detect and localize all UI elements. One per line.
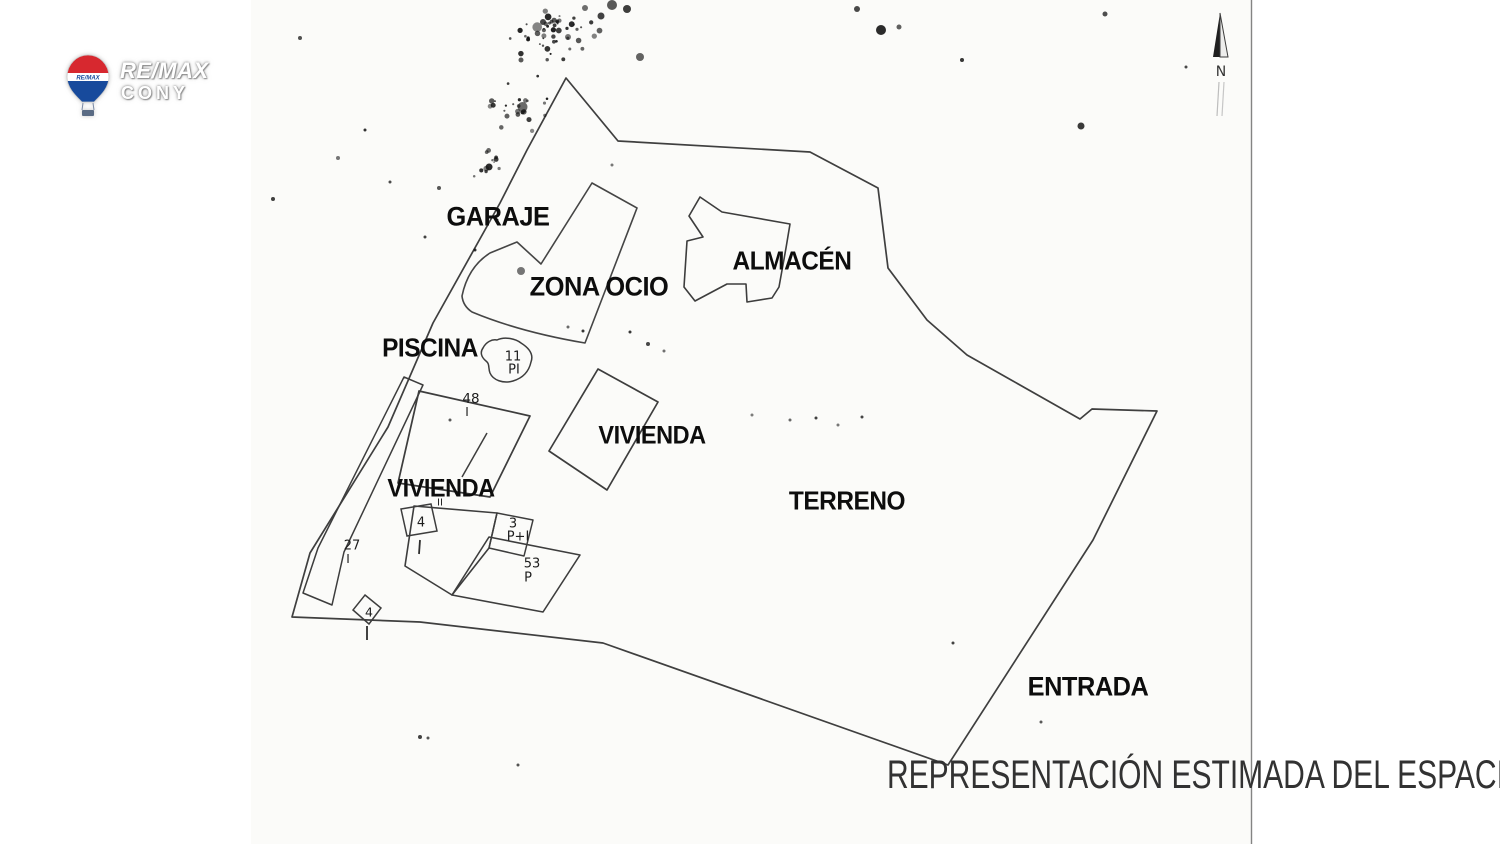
ink-speckle: [543, 8, 548, 13]
north-arrow-left-half: [1213, 13, 1220, 57]
ink-speckle: [546, 97, 549, 100]
ink-speckle: [515, 109, 520, 114]
ink-speckle: [298, 36, 302, 40]
ink-speckle: [437, 186, 441, 190]
ink-speckle: [526, 117, 531, 122]
ink-speckle: [550, 53, 552, 55]
building-almacen: [684, 197, 790, 302]
ink-speckle: [646, 342, 650, 346]
estimation-caption: REPRESENTACIÓN ESTIMADA DEL ESPACIO: [887, 753, 1500, 798]
ink-speckle: [491, 159, 493, 161]
ink-speckle: [512, 103, 514, 105]
ink-speckle: [1103, 12, 1108, 17]
ink-speckle: [548, 22, 551, 25]
ink-speckle: [551, 27, 556, 32]
ink-speckle: [494, 155, 498, 159]
remax-wordmark: RE/MAX: [120, 58, 209, 84]
ink-speckle: [389, 181, 392, 184]
ink-speckle: [479, 168, 483, 172]
north-arrow-right-half: [1220, 13, 1228, 57]
building-strip-27: [303, 377, 423, 605]
ink-speckle: [607, 0, 617, 10]
ink-speckle: [597, 28, 603, 34]
ink-speckle: [517, 764, 520, 767]
ink-speckle: [473, 175, 476, 178]
ink-speckle: [556, 28, 562, 34]
ink-speckle: [545, 14, 552, 21]
ink-speckle: [524, 35, 527, 38]
square-4-upper: [401, 504, 437, 536]
ink-speckle: [518, 51, 523, 56]
ink-speckle: [507, 82, 510, 85]
ink-speckle: [517, 28, 522, 33]
ink-speckle: [556, 20, 559, 23]
ink-speckle: [418, 735, 422, 739]
ink-speckle: [751, 414, 754, 417]
ink-speckle: [517, 267, 525, 275]
remax-balloon-icon: RE/MAX: [64, 54, 112, 118]
ink-speckle: [1185, 66, 1188, 69]
ink-speckle: [488, 104, 493, 109]
ink-speckle: [518, 98, 521, 101]
ink-speckle: [861, 416, 864, 419]
pool-piscina: [481, 338, 532, 382]
ink-speckle: [960, 58, 964, 62]
ink-speckle: [663, 350, 666, 353]
ink-speckle: [486, 148, 491, 153]
ink-speckle: [623, 5, 631, 13]
north-staff-line-1: [1217, 82, 1219, 116]
ink-speckle: [526, 37, 530, 41]
building-zona-ocio: [462, 183, 637, 343]
ink-speckle: [553, 23, 557, 27]
ink-speckle: [582, 5, 588, 11]
ink-speckle: [580, 47, 584, 51]
ink-speckle: [543, 114, 546, 117]
building-48-partition: [462, 433, 487, 477]
ink-speckle: [542, 38, 544, 40]
ink-speckle: [569, 21, 575, 27]
ink-speckle: [897, 25, 902, 30]
ink-speckle: [1078, 123, 1085, 130]
ink-speckle: [1040, 721, 1043, 724]
building-53: [452, 537, 580, 612]
ink-speckle: [837, 424, 840, 427]
ink-speckle: [497, 167, 500, 170]
ink-speckle: [530, 129, 534, 133]
remax-logo: RE/MAX RE/MAX CONY: [64, 52, 284, 132]
building-vivienda-right: [549, 369, 658, 490]
ink-speckle: [545, 46, 551, 52]
ink-speckle: [598, 13, 605, 20]
ink-speckle: [271, 197, 275, 201]
ink-speckle: [565, 34, 571, 40]
ink-speckle: [526, 23, 528, 25]
building-48: [398, 391, 530, 497]
ink-speckle: [424, 236, 427, 239]
speckle-layer: [271, 0, 1188, 767]
ink-speckle: [561, 57, 565, 61]
ink-speckle: [483, 166, 489, 172]
ink-speckle: [532, 22, 542, 32]
ink-speckle: [509, 37, 512, 40]
ink-speckle: [503, 110, 505, 112]
ink-speckle: [592, 33, 597, 38]
ink-speckle: [505, 104, 507, 106]
ink-speckle: [519, 58, 524, 63]
ink-speckle: [876, 25, 886, 35]
ink-speckle: [854, 6, 860, 12]
ink-speckle: [449, 419, 452, 422]
ink-speckle: [542, 28, 546, 32]
ink-speckle: [541, 33, 546, 38]
ink-speckle: [536, 75, 539, 78]
ink-speckle: [611, 164, 614, 167]
ink-speckle: [474, 249, 477, 252]
ink-speckle: [576, 38, 582, 44]
ink-speckle: [952, 642, 955, 645]
terrain-boundary: [292, 78, 1157, 765]
ink-speckle: [789, 419, 792, 422]
building-3: [489, 513, 533, 556]
ink-speckle: [496, 219, 499, 222]
ink-speckle: [539, 43, 541, 45]
ink-speckle: [582, 330, 585, 333]
ink-speckle: [523, 98, 528, 103]
ink-speckle: [545, 58, 548, 61]
ink-speckle: [575, 28, 578, 31]
ink-speckle: [629, 331, 632, 334]
ink-speckle: [499, 125, 504, 129]
ink-speckle: [505, 114, 510, 119]
ink-speckle: [540, 19, 546, 25]
ink-speckle: [489, 98, 494, 103]
office-name: CONY: [121, 83, 189, 104]
ink-speckle: [364, 129, 367, 132]
ink-speckle: [427, 737, 430, 740]
ink-speckle: [543, 102, 546, 105]
ink-speckle: [557, 23, 559, 25]
ink-speckle: [336, 156, 340, 160]
ink-speckle: [558, 15, 560, 17]
ink-speckle: [552, 40, 556, 44]
ink-speckle: [568, 47, 571, 50]
ink-speckle: [565, 27, 568, 30]
ink-speckle: [567, 326, 570, 329]
north-staff-line-2: [1222, 82, 1224, 116]
ink-speckle: [815, 417, 818, 420]
ink-speckle: [493, 161, 495, 163]
balloon-band-text: RE/MAX: [76, 76, 100, 82]
ink-speckle: [636, 53, 644, 61]
ink-speckle: [589, 20, 593, 24]
square-4-upper-tick: [419, 540, 420, 554]
ink-speckle: [521, 109, 527, 115]
ink-speckle: [517, 104, 521, 108]
ink-speckle: [551, 34, 555, 38]
north-label: N: [1216, 64, 1226, 80]
ink-speckle: [572, 16, 575, 19]
ink-speckle: [542, 44, 544, 46]
site-plan-page: N RE/MAX RE/MAX CONY: [0, 0, 1500, 844]
north-arrow: N: [1213, 13, 1228, 116]
ink-speckle: [580, 26, 582, 28]
